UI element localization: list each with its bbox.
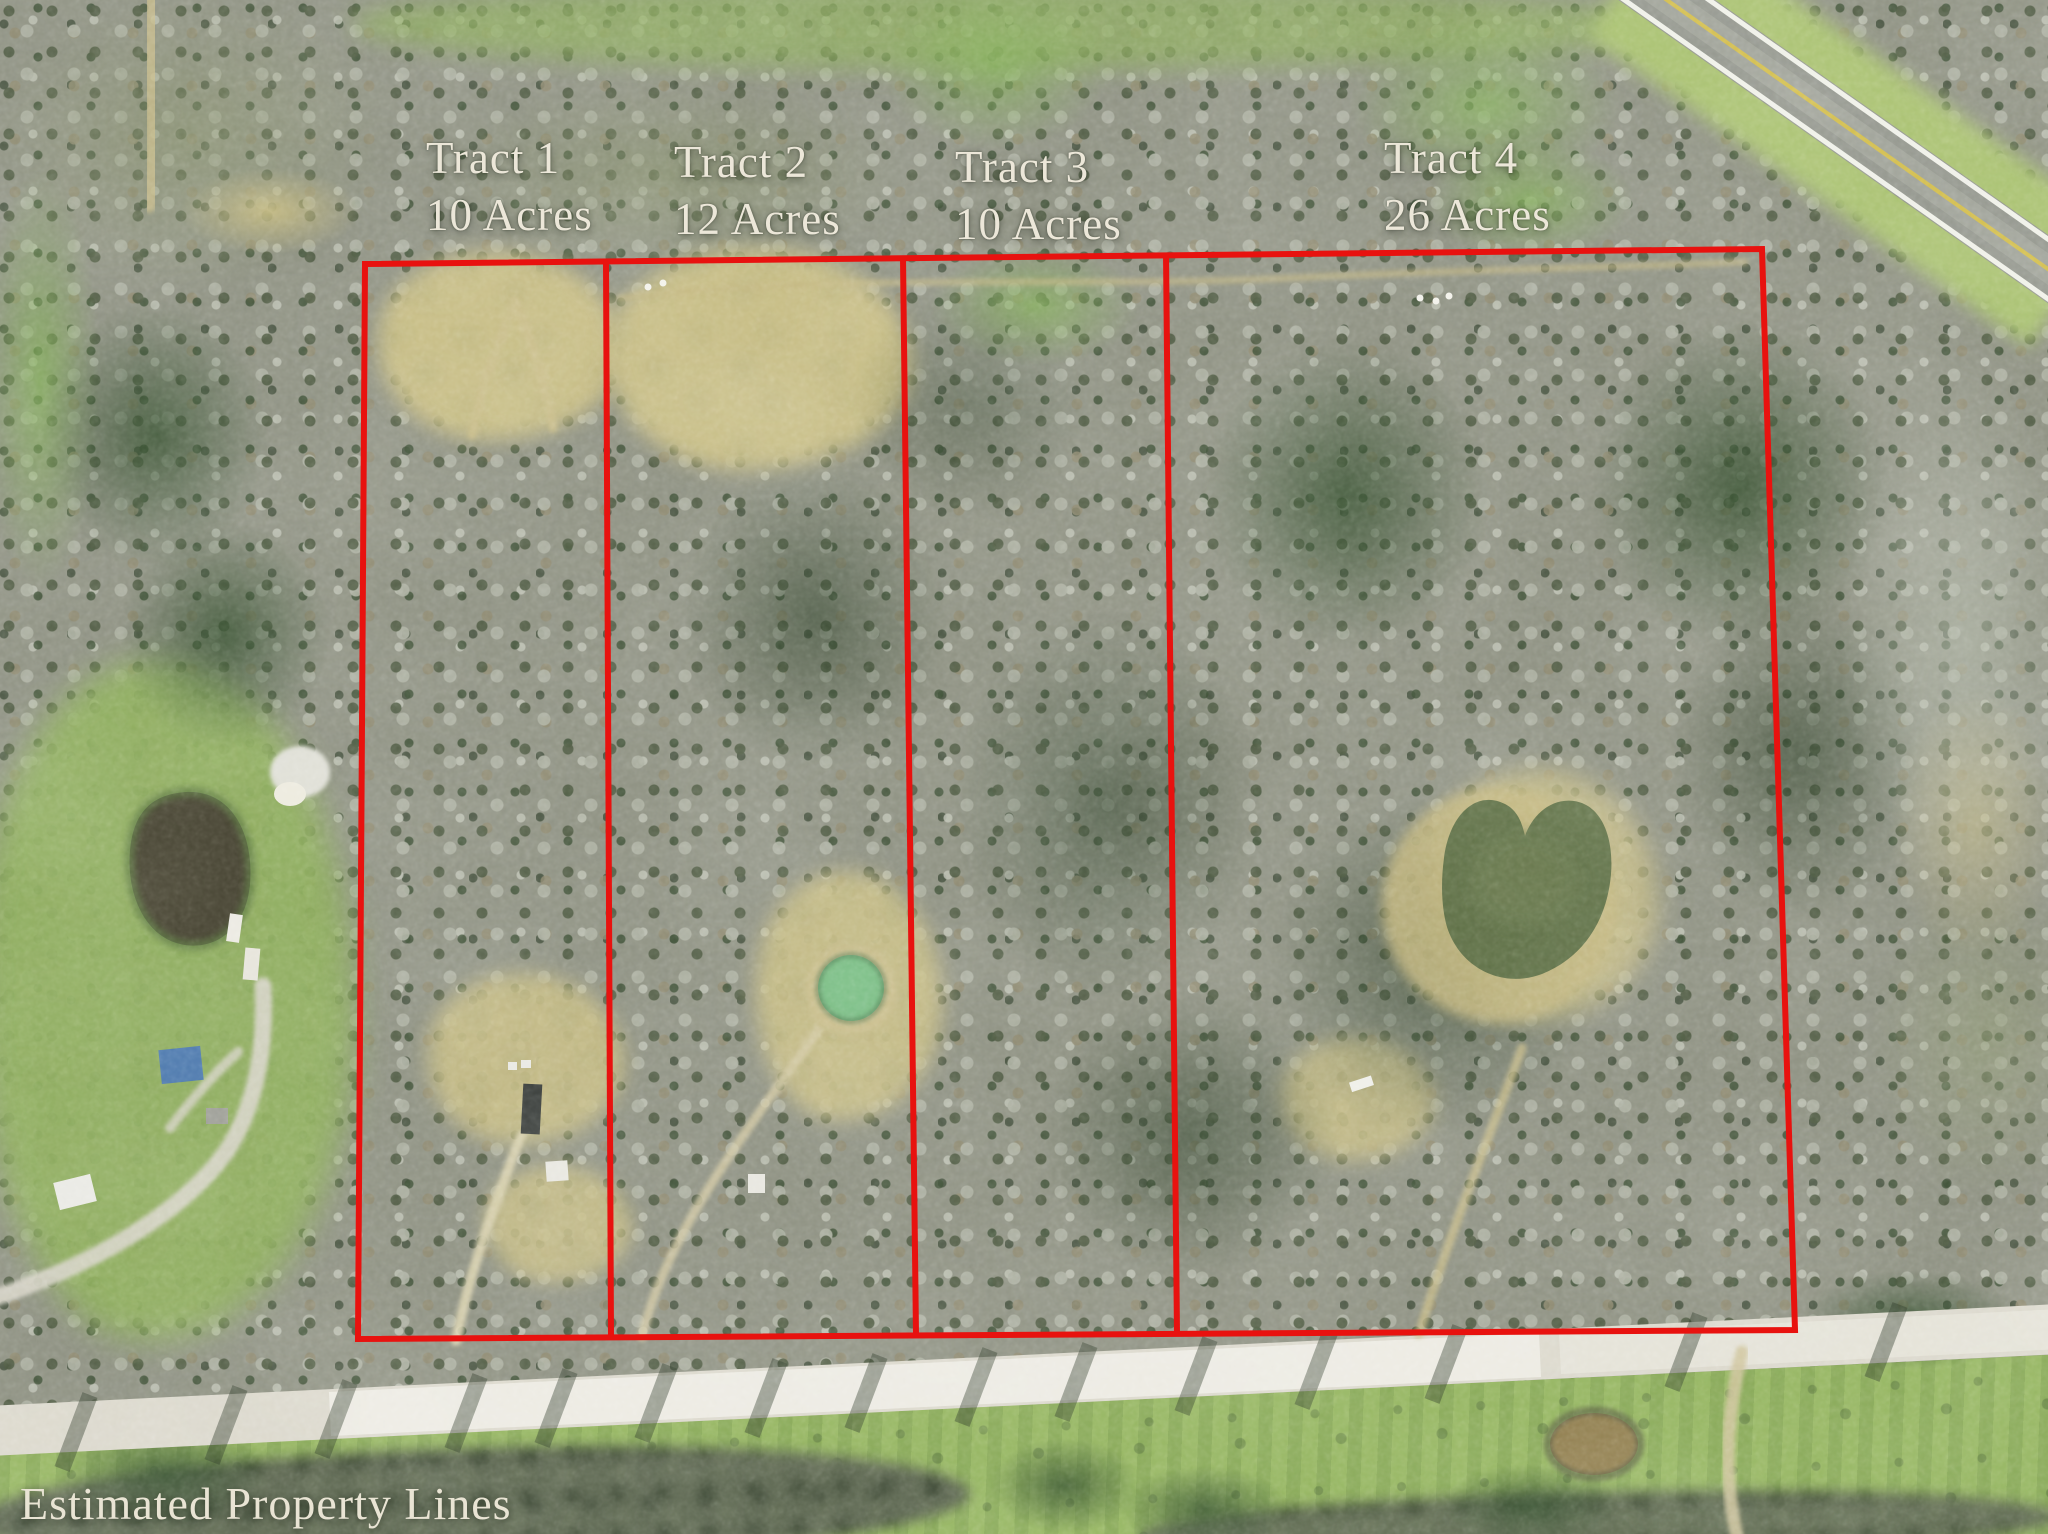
tract-1-label: Tract 1 10 Acres: [426, 130, 593, 244]
estimated-property-lines-label: Estimated Property Lines: [20, 1474, 512, 1534]
tract-1-name: Tract 1: [426, 130, 593, 187]
tract-3-acres: 10 Acres: [955, 196, 1122, 253]
property-line-outer-boundary: [358, 249, 1795, 1339]
property-line-divider-3: [1166, 254, 1177, 1334]
tract-3-name: Tract 3: [955, 139, 1122, 196]
tract-2-acres: 12 Acres: [674, 191, 841, 248]
tract-2-label: Tract 2 12 Acres: [674, 134, 841, 248]
tract-4-name: Tract 4: [1384, 130, 1551, 187]
tract-2-name: Tract 2: [674, 134, 841, 191]
tract-1-acres: 10 Acres: [426, 187, 593, 244]
tract-4-label: Tract 4 26 Acres: [1384, 130, 1551, 244]
tract-4-acres: 26 Acres: [1384, 187, 1551, 244]
property-line-divider-2: [903, 258, 916, 1335]
property-line-divider-1: [606, 262, 611, 1337]
tract-3-label: Tract 3 10 Acres: [955, 139, 1122, 253]
aerial-photo: Tract 1 10 Acres Tract 2 12 Acres Tract …: [0, 0, 2048, 1534]
